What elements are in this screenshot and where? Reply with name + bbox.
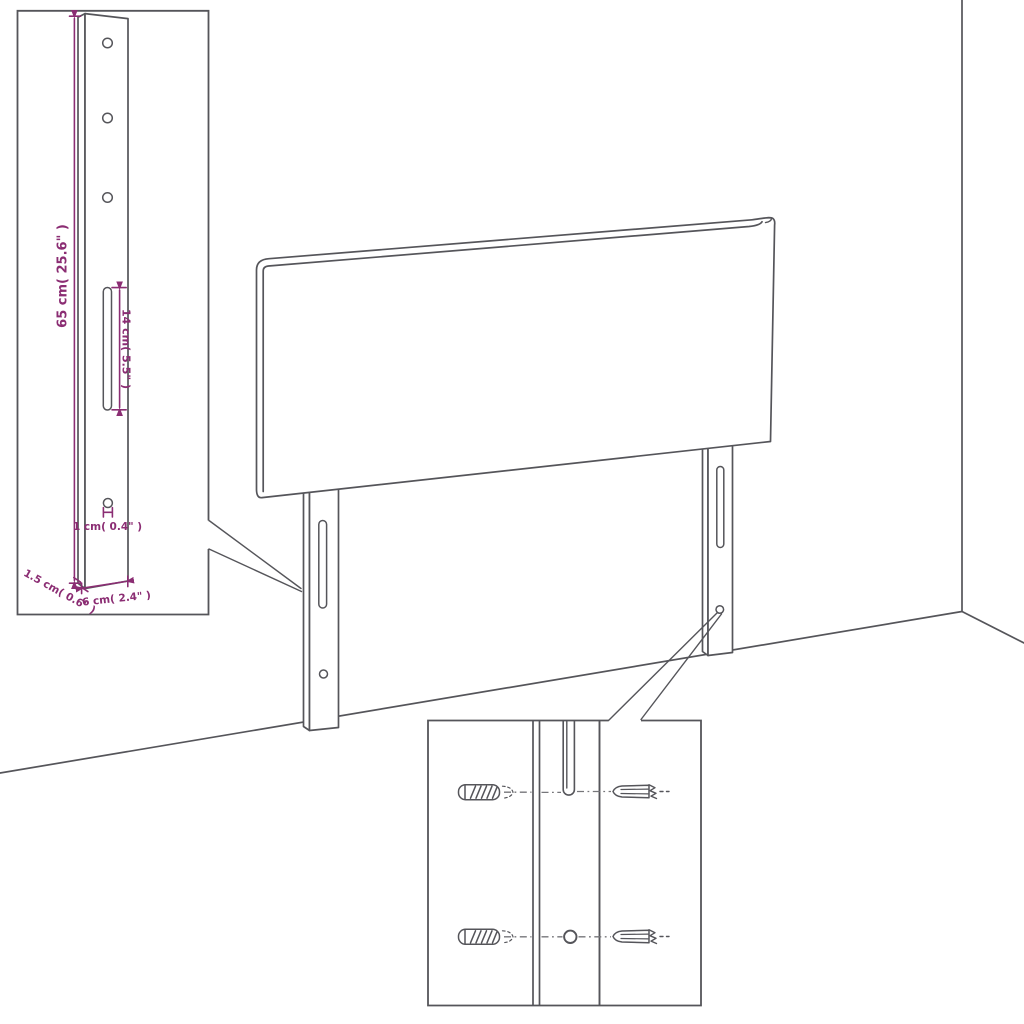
mounting-detail-inset	[428, 721, 701, 1006]
callout-line	[609, 613, 718, 721]
mounting-inset-border	[428, 721, 701, 1006]
dimension-height: 65 cm( 25.6" )	[56, 16, 81, 583]
bracket-side-face	[78, 14, 85, 589]
headboard-panel-outline	[257, 218, 775, 498]
inset-slot	[563, 721, 574, 795]
leg-detail-inset: 65 cm( 25.6" ) 14 cm( 5.5" ) 1 cm( 0.4" …	[18, 11, 209, 617]
floor-line-right	[962, 612, 1024, 644]
bracket-slot	[103, 288, 111, 411]
left-leg	[304, 485, 339, 731]
screw-icon	[613, 930, 669, 944]
right-leg-slot	[717, 467, 724, 548]
diagram-svg: 65 cm( 25.6" ) 14 cm( 5.5" ) 1 cm( 0.4" …	[0, 0, 1024, 1024]
dimension-hole-diameter-label: 1 cm( 0.4" )	[73, 521, 142, 533]
left-leg-slot	[319, 521, 327, 609]
callout-wedge-left	[209, 521, 302, 592]
dimension-slot-length-label: 14 cm( 5.5" )	[120, 309, 133, 389]
inset-leg-section	[533, 721, 600, 1005]
callout-line	[209, 521, 301, 589]
callout-line	[641, 614, 722, 720]
dimension-height-label: 65 cm( 25.6" )	[56, 224, 71, 328]
screw-icon	[613, 785, 669, 799]
floor-line-left	[0, 612, 962, 774]
inset-leg-side-edge	[533, 721, 540, 1005]
dimension-width-label: 6 cm( 2.4" )	[82, 589, 152, 608]
headboard-assembly-diagram: 65 cm( 25.6" ) 14 cm( 5.5" ) 1 cm( 0.4" …	[0, 0, 1024, 1024]
bracket-enlarged	[78, 14, 128, 589]
headboard	[257, 218, 775, 498]
left-leg-side-face	[304, 487, 310, 731]
inset-hole	[564, 931, 576, 943]
